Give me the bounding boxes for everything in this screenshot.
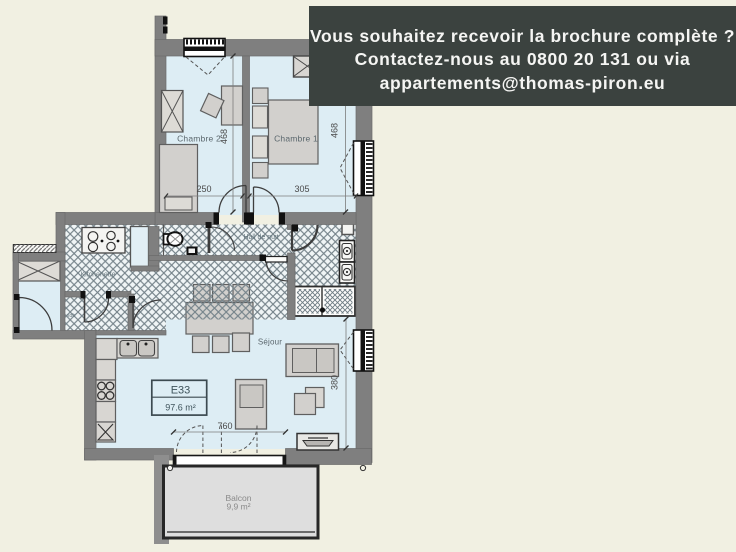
svg-text:Séjour: Séjour — [258, 338, 282, 347]
svg-text:250: 250 — [196, 184, 211, 194]
svg-text:468: 468 — [330, 123, 340, 138]
svg-text:E33: E33 — [171, 385, 191, 397]
svg-text:Chambre 2: Chambre 2 — [177, 134, 221, 144]
svg-text:305: 305 — [294, 184, 309, 194]
svg-text:760: 760 — [217, 421, 232, 431]
svg-text:Chambre 1: Chambre 1 — [274, 134, 318, 144]
svg-text:Kitchenette: Kitchenette — [80, 272, 115, 279]
svg-text:97.6 m²: 97.6 m² — [165, 403, 196, 413]
svg-text:Hall de nuit: Hall de nuit — [243, 234, 278, 241]
svg-text:sdb: sdb — [67, 313, 76, 319]
svg-text:380: 380 — [330, 375, 340, 390]
svg-text:9,9 m²: 9,9 m² — [226, 502, 250, 512]
